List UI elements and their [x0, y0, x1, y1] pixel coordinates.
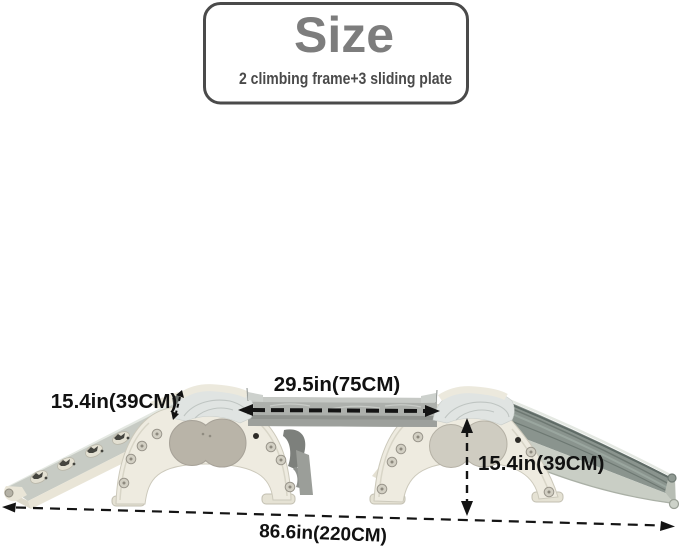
svg-text:15.4in(39CM): 15.4in(39CM)	[51, 390, 177, 413]
svg-text:86.6in(220CM): 86.6in(220CM)	[259, 521, 387, 546]
svg-text:Size: Size	[294, 7, 394, 63]
svg-text:2 climbing frame+3 sliding pla: 2 climbing frame+3 sliding plate	[239, 69, 452, 88]
svg-text:29.5in(75CM): 29.5in(75CM)	[274, 373, 400, 396]
svg-text:15.4in(39CM): 15.4in(39CM)	[478, 452, 604, 475]
